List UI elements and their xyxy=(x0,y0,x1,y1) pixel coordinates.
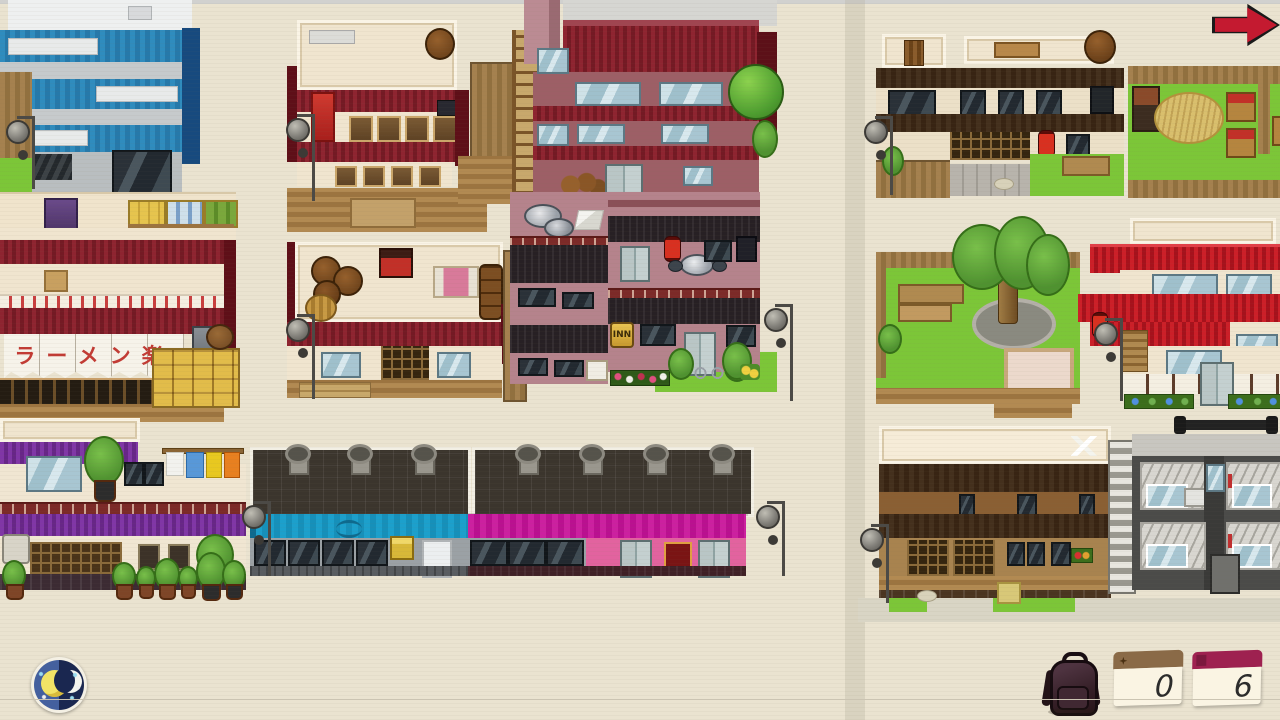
window xyxy=(518,288,556,307)
window xyxy=(1152,274,1218,296)
red-marker xyxy=(1228,474,1232,488)
plant-pot xyxy=(94,480,116,502)
roof-band xyxy=(510,245,608,283)
shop-window xyxy=(322,540,354,566)
roof-band xyxy=(0,514,246,536)
wall-band xyxy=(876,114,1124,132)
window xyxy=(1146,484,1188,508)
window xyxy=(1051,542,1071,566)
wall-band xyxy=(879,492,1111,514)
shrine-box xyxy=(379,248,413,278)
notice-board xyxy=(586,360,608,381)
window xyxy=(537,124,569,146)
stairwell-window xyxy=(1206,464,1225,492)
awning-band xyxy=(250,514,474,538)
vending-machine xyxy=(44,198,78,232)
roof-slab xyxy=(563,26,759,72)
platform-roof xyxy=(250,447,471,517)
izakaya-building xyxy=(287,20,477,192)
roof-band xyxy=(297,142,462,162)
wall-sign xyxy=(1090,86,1114,114)
plant-pot xyxy=(6,584,24,600)
haystack xyxy=(1154,92,1224,144)
shop-sign xyxy=(390,536,414,560)
wall-band xyxy=(876,68,1124,88)
window xyxy=(419,166,441,187)
inn-terrace-block xyxy=(510,192,608,384)
window xyxy=(640,324,676,346)
roof-band xyxy=(0,240,236,264)
flower-box xyxy=(1124,394,1194,409)
corner-fold xyxy=(287,66,297,162)
window xyxy=(554,360,584,377)
fence-side xyxy=(876,268,886,378)
hay-yard xyxy=(1128,66,1280,198)
lattice-door xyxy=(381,346,429,380)
flower-bed xyxy=(610,370,670,386)
fence xyxy=(1128,180,1280,198)
window xyxy=(683,166,713,186)
table xyxy=(433,266,479,298)
parapet-stripe xyxy=(608,200,760,207)
ac-unit xyxy=(1184,488,1206,507)
willow-foliage xyxy=(1026,234,1070,296)
header-notch xyxy=(1196,655,1206,666)
window xyxy=(959,494,975,516)
wooden-rowhouse xyxy=(865,414,1111,606)
shop-window xyxy=(288,540,320,566)
window xyxy=(888,90,936,116)
window xyxy=(437,352,471,378)
inn-sign: INN xyxy=(610,322,634,348)
arrow-fill xyxy=(1215,6,1277,44)
stone-path xyxy=(950,164,1030,196)
barrel xyxy=(206,324,234,350)
window xyxy=(562,292,594,309)
ramen-shop: ラーメン楽 xyxy=(0,228,236,398)
roof-band xyxy=(8,0,192,33)
magenta-shop xyxy=(468,514,746,576)
bottom-menu: Voltar Pular Automático Salvar Carregar … xyxy=(0,698,1280,720)
roof-sign xyxy=(0,418,140,442)
roof-sign xyxy=(1130,218,1276,244)
shop-window xyxy=(508,540,546,566)
hay-bale xyxy=(997,582,1021,604)
sand-plot xyxy=(1004,348,1074,392)
window xyxy=(1007,542,1025,566)
plant-pot xyxy=(226,584,243,600)
base xyxy=(468,566,746,576)
shop-sign-red xyxy=(664,542,692,568)
plant-pot xyxy=(202,584,221,601)
window xyxy=(363,166,385,187)
plant-pot xyxy=(116,584,133,600)
window xyxy=(124,462,144,486)
rooftop-units xyxy=(309,30,355,44)
papers xyxy=(574,210,604,230)
laundry-blue xyxy=(186,452,204,478)
roof-vent xyxy=(709,446,735,476)
game-viewport: ラーメン楽 xyxy=(0,0,1280,720)
birds xyxy=(1071,436,1099,456)
balcony-window xyxy=(26,456,82,492)
roof-pot xyxy=(1084,30,1116,64)
noren-text: ラーメン楽 xyxy=(14,340,173,370)
window xyxy=(349,116,373,142)
window xyxy=(377,116,401,142)
gray-apartment xyxy=(1132,434,1280,590)
barrel-stack xyxy=(479,264,503,320)
potted-plant xyxy=(668,348,694,380)
roof-item xyxy=(904,40,924,66)
crate xyxy=(44,270,68,292)
armchair xyxy=(1272,116,1280,146)
crate-stack xyxy=(152,348,240,408)
willow-garden xyxy=(876,252,1080,404)
rocks xyxy=(994,178,1014,190)
roof-vent xyxy=(643,446,669,476)
post-row xyxy=(879,590,1111,598)
window xyxy=(1017,494,1037,516)
entry-door xyxy=(1210,554,1240,594)
window xyxy=(518,358,548,376)
roof-band xyxy=(0,308,224,334)
roof-band xyxy=(287,322,509,346)
bench xyxy=(898,304,952,322)
window xyxy=(575,82,641,106)
wall-band xyxy=(879,464,1111,492)
bench xyxy=(898,284,964,304)
sake-shop xyxy=(287,242,523,398)
plant-pot xyxy=(159,584,176,600)
window xyxy=(960,90,986,116)
roof-vent xyxy=(285,446,311,476)
flower-box xyxy=(1071,548,1093,563)
roof-stripe xyxy=(533,146,759,160)
vending-machine xyxy=(736,236,757,262)
inn-lower-building: INN xyxy=(608,192,760,388)
shop-window xyxy=(470,540,508,566)
purple-apartment xyxy=(0,416,246,602)
corner-column xyxy=(182,28,200,164)
cyan-shop xyxy=(250,514,468,576)
red-lantern xyxy=(664,236,681,262)
base xyxy=(250,566,468,576)
rocks xyxy=(917,590,937,602)
window xyxy=(405,116,429,142)
tree xyxy=(728,64,784,120)
balcony-tree xyxy=(84,436,124,486)
window xyxy=(1036,90,1062,116)
elevator-door xyxy=(620,246,650,282)
window xyxy=(391,166,413,187)
plant-pot xyxy=(181,584,196,599)
bicycles xyxy=(692,364,726,379)
window-strip xyxy=(96,86,178,102)
platform-roof xyxy=(472,447,754,517)
roof-stripe xyxy=(533,106,759,121)
window xyxy=(335,166,357,187)
armchair xyxy=(1226,92,1256,122)
flower-box xyxy=(1228,394,1280,409)
laundry-orange xyxy=(224,452,240,478)
lattice-door xyxy=(907,540,949,576)
window xyxy=(1079,494,1095,516)
deck xyxy=(876,388,1080,404)
potted-plant xyxy=(878,324,902,354)
window xyxy=(661,124,709,144)
roof-bench xyxy=(994,42,1040,58)
roof-vent xyxy=(579,446,605,476)
window xyxy=(659,82,723,106)
shop-window xyxy=(356,540,388,566)
roof-pipe xyxy=(1178,420,1274,430)
barrel xyxy=(425,28,455,60)
wooden-inn xyxy=(876,28,1124,196)
window xyxy=(998,90,1024,116)
pipe-joint xyxy=(1266,416,1278,434)
roof-band xyxy=(608,298,760,324)
base xyxy=(879,576,1111,590)
entrance-windows xyxy=(112,150,172,194)
armchair xyxy=(1226,128,1256,158)
lattice-door xyxy=(953,540,995,576)
stairs xyxy=(1122,330,1148,372)
window xyxy=(537,48,569,74)
shop-window xyxy=(546,540,584,566)
laundry-white xyxy=(166,452,184,476)
bench xyxy=(1062,156,1110,176)
roof-vent xyxy=(347,446,373,476)
window xyxy=(1146,544,1188,568)
window xyxy=(1226,274,1272,296)
awning-band xyxy=(468,514,746,538)
corner-fold xyxy=(455,90,469,166)
window-strip xyxy=(8,38,98,55)
roof-band xyxy=(510,325,608,353)
stool xyxy=(668,260,683,272)
window xyxy=(144,462,164,486)
window xyxy=(1027,542,1045,566)
inn-sign-text: INN xyxy=(613,330,631,340)
yellow-flowers xyxy=(740,364,760,380)
window xyxy=(321,352,361,378)
wave-logo xyxy=(336,520,362,538)
window xyxy=(1232,484,1272,508)
window xyxy=(433,116,457,142)
exit-arrow-icon[interactable] xyxy=(1212,2,1280,48)
roof-vent xyxy=(515,446,541,476)
deck-table xyxy=(350,198,416,228)
wall-band xyxy=(0,264,224,294)
window xyxy=(704,240,732,262)
star-icon xyxy=(1119,657,1127,665)
fence-divider xyxy=(1258,74,1270,154)
roof-vent xyxy=(128,6,152,20)
window xyxy=(577,124,625,144)
wall-band xyxy=(879,514,1111,538)
roof-band xyxy=(1090,244,1280,273)
plant-pot xyxy=(139,584,154,599)
lattice-wall xyxy=(950,132,1030,160)
red-marker xyxy=(1228,534,1232,548)
lattice-door xyxy=(30,542,122,574)
pipe-joint xyxy=(1174,416,1186,434)
bush xyxy=(752,120,778,158)
laundry-yellow xyxy=(206,452,222,478)
roof-vent xyxy=(411,446,437,476)
round-table xyxy=(544,218,574,238)
